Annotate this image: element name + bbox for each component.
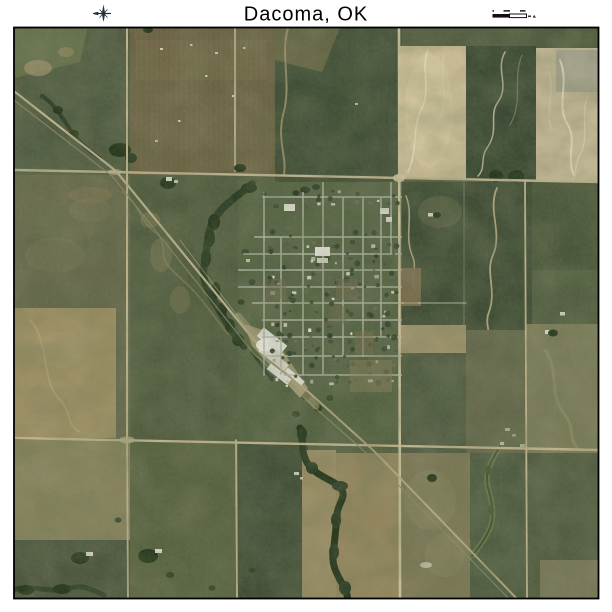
svg-text:Dacoma, OK: Dacoma, OK (244, 4, 368, 26)
